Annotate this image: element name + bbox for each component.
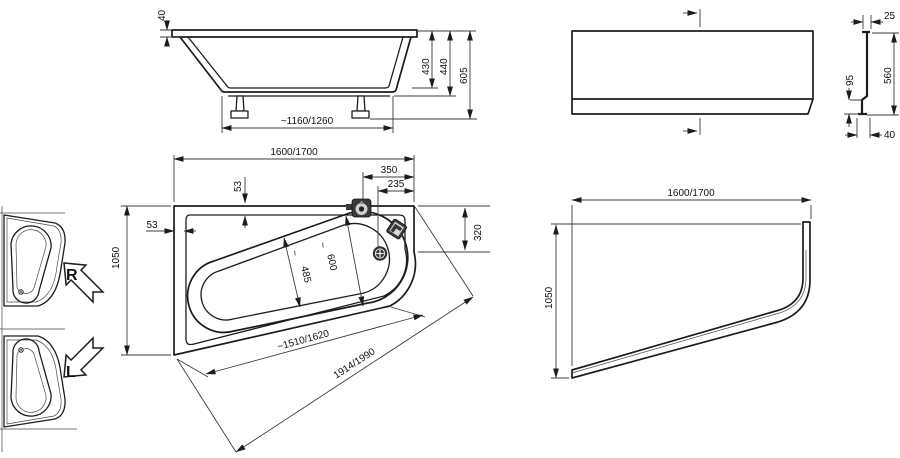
bath-foot-right bbox=[352, 96, 369, 118]
ext-lines-panel-width bbox=[551, 224, 801, 378]
ext-lines-95 bbox=[844, 100, 862, 114]
dim-label-drain-offset: 235 bbox=[388, 179, 405, 190]
dim-label-rim-left: 53 bbox=[146, 220, 158, 231]
left-version-icon bbox=[4, 336, 65, 427]
dim-label-width: 1050 bbox=[111, 246, 122, 269]
bath-foot-left bbox=[231, 96, 248, 118]
drain-icon bbox=[373, 246, 387, 260]
ext-lines-panel-length bbox=[572, 205, 811, 366]
orientation-column: R L bbox=[0, 206, 108, 452]
front-panel-view bbox=[572, 9, 813, 135]
dim-label-top-depth: 25 bbox=[884, 11, 896, 22]
dim-label-rim-thickness: 40 bbox=[157, 9, 168, 21]
bath-shell-outline bbox=[180, 37, 411, 92]
ext-lines-rim bbox=[160, 30, 181, 37]
dim-label-panel-height: 560 bbox=[883, 67, 894, 84]
dim-label-body-height: 440 bbox=[439, 58, 450, 75]
right-version-label: R bbox=[66, 267, 78, 284]
dim-label-tap-offset: 350 bbox=[381, 165, 398, 176]
dim-label-front-inner: ~1510/1620 bbox=[276, 328, 331, 353]
dim-label-step-height: 95 bbox=[845, 74, 856, 86]
ext-lines-25 bbox=[863, 15, 871, 29]
bath-rim-outline bbox=[172, 30, 417, 37]
dim-label-rim-top: 53 bbox=[233, 180, 244, 192]
dim-label-feet-spacing: ~1160/1260 bbox=[281, 116, 334, 127]
right-version-icon bbox=[4, 215, 65, 306]
panel-plan-outline bbox=[572, 222, 810, 378]
dim-label-length: 1600/1700 bbox=[270, 147, 318, 158]
panel-plan-fold-line bbox=[572, 250, 806, 373]
technical-drawing: 40 ~1160/1260 430 440 605 25 560 bbox=[0, 0, 900, 458]
technical-drawing-page: 40 ~1160/1260 430 440 605 25 560 bbox=[0, 0, 900, 458]
bath-inner-outline bbox=[188, 37, 403, 88]
dim-label-total-height: 605 bbox=[459, 67, 470, 84]
panel-face-outline bbox=[572, 31, 813, 99]
dim-label-inner-depth: 430 bbox=[421, 58, 432, 75]
plan-outer-outline bbox=[174, 206, 415, 355]
left-version-label: L bbox=[66, 364, 76, 381]
dim-label-panel-width: 1050 bbox=[544, 286, 555, 309]
plan-view: 1600/1700 350 235 53 53 1050 320 ~ 485 ~… bbox=[111, 147, 490, 452]
dim-label-bottom-depth: 40 bbox=[884, 130, 896, 141]
dim-label-corner: 320 bbox=[473, 224, 484, 241]
panel-base-strip bbox=[572, 99, 813, 114]
side-elevation-view: 40 ~1160/1260 430 440 605 bbox=[157, 9, 477, 133]
panel-profile-outline bbox=[858, 32, 870, 114]
dim-label-panel-length: 1600/1700 bbox=[667, 188, 715, 199]
ext-lines-40b bbox=[857, 118, 870, 138]
panel-profile-view: 25 560 95 40 bbox=[844, 11, 899, 141]
panel-plan-view: 1600/1700 1050 bbox=[544, 188, 811, 378]
